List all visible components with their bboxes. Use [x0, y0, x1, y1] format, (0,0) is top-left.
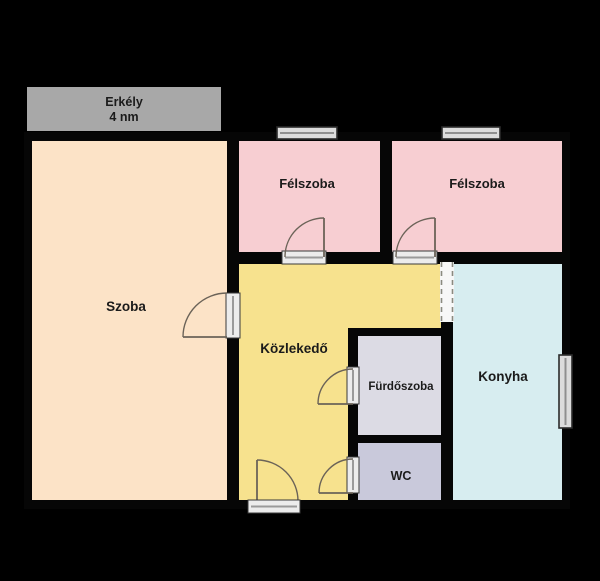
room-felszoba-left: [239, 141, 380, 252]
label-szoba: Szoba: [106, 299, 146, 314]
wall-felszoba-divider: [380, 141, 392, 252]
room-kozlekedo-lower: [239, 300, 348, 500]
open-passage-konyha: [440, 262, 454, 322]
window-felszoba-left: [277, 127, 337, 139]
label-wc: WC: [391, 469, 412, 483]
room-szoba: [32, 141, 227, 500]
wall-bath-wc-divider: [348, 435, 450, 443]
floor-plan-svg: Erkély 4 nm Szoba Félszoba Félszoba Közl…: [0, 0, 600, 581]
label-erkely: Erkély: [105, 95, 143, 109]
room-felszoba-right: [392, 141, 562, 252]
label-furdoszoba: Fürdőszoba: [368, 381, 434, 393]
label-konyha: Konyha: [478, 369, 528, 384]
window-felszoba-right: [442, 127, 500, 139]
wall-left: [24, 132, 32, 509]
room-balcony: [26, 86, 223, 133]
label-felszoba-left: Félszoba: [279, 176, 335, 191]
floor-plan-canvas: Erkély 4 nm Szoba Félszoba Félszoba Közl…: [0, 0, 600, 581]
wall-bath-top: [348, 328, 450, 336]
wall-right: [562, 132, 570, 509]
label-kozlekedo: Közlekedő: [260, 341, 328, 356]
window-konyha: [559, 355, 572, 428]
label-erkely-area: 4 nm: [109, 110, 138, 124]
label-felszoba-right: Félszoba: [449, 176, 505, 191]
